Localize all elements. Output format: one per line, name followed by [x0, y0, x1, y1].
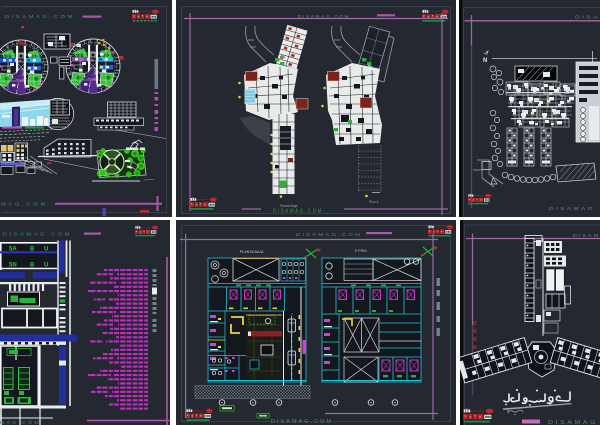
svg-text:U: U — [44, 262, 48, 268]
svg-text:DISA: DISA — [575, 15, 600, 20]
svg-text:Piso 1: Piso 1 — [369, 200, 379, 204]
svg-text:DISAMAG: DISAMAG — [548, 420, 598, 425]
svg-text:B: B — [30, 246, 35, 252]
svg-text:DISAMAG.COM: DISAMAG.COM — [273, 209, 323, 215]
svg-text:N: N — [483, 58, 487, 64]
svg-text:P PISO: P PISO — [355, 249, 367, 253]
svg-text:DISAMAG.COM: DISAMAG.COM — [296, 232, 362, 237]
svg-text:5A: 5A — [9, 246, 17, 252]
svg-text:U: U — [44, 246, 48, 252]
svg-text:MAG.COM: MAG.COM — [1, 202, 48, 207]
svg-text:DISAMAG.COM: DISAMAG.COM — [3, 231, 72, 236]
svg-text:MAG.COM: MAG.COM — [0, 420, 41, 425]
svg-text:DISAMAG.COM: DISAMAG.COM — [271, 419, 333, 425]
svg-text:B: B — [30, 262, 35, 268]
svg-text:Planta Baja: Planta Baja — [280, 204, 297, 208]
svg-text:5N: 5N — [9, 262, 17, 268]
svg-text:DISAMAG: DISAMAG — [549, 206, 595, 211]
svg-text:DISAMAG.COM: DISAMAG.COM — [5, 14, 75, 19]
svg-text:DISAM: DISAM — [573, 233, 600, 238]
svg-text:PLANTA BAJA: PLANTA BAJA — [240, 250, 264, 254]
